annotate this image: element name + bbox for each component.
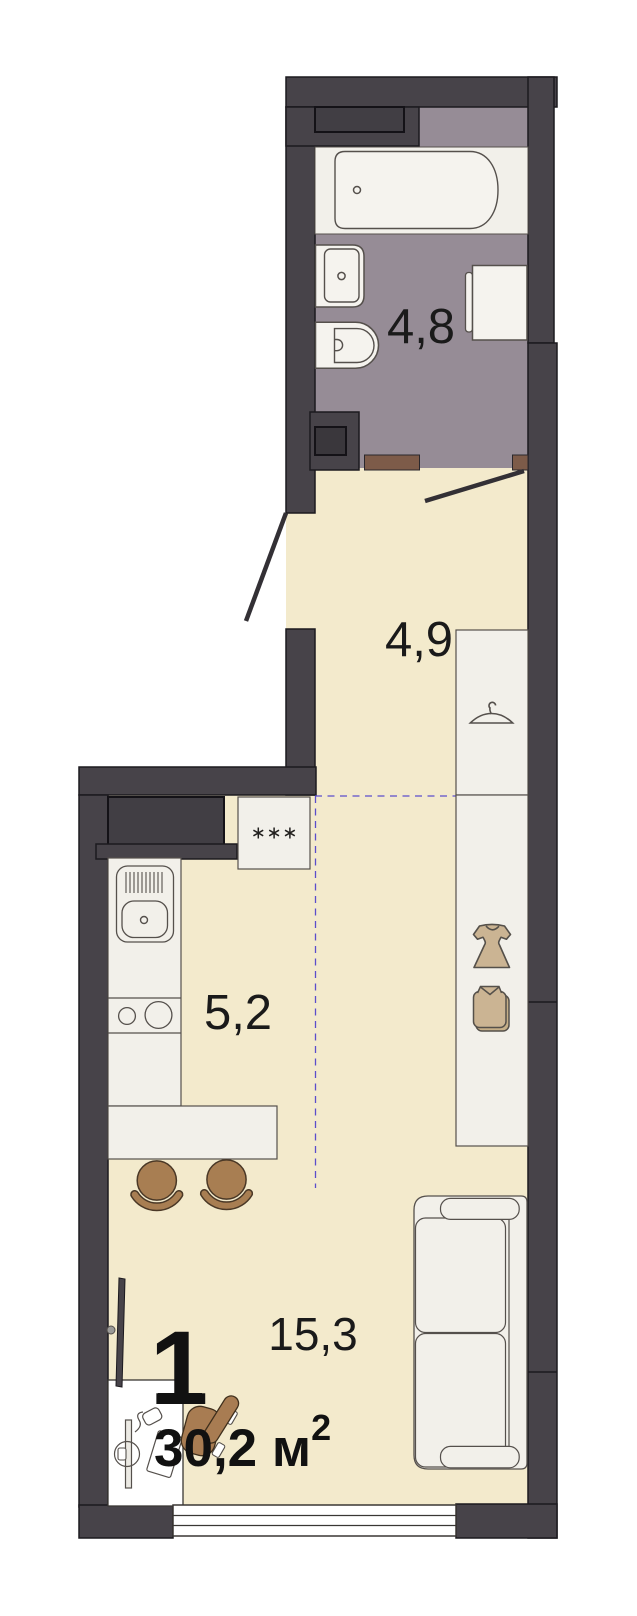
svg-text:15,3: 15,3 — [268, 1308, 358, 1360]
svg-text:1: 1 — [150, 1310, 208, 1427]
svg-text:5,2: 5,2 — [204, 986, 272, 1040]
svg-text:4,9: 4,9 — [385, 613, 453, 667]
svg-text:4,8: 4,8 — [387, 300, 455, 354]
